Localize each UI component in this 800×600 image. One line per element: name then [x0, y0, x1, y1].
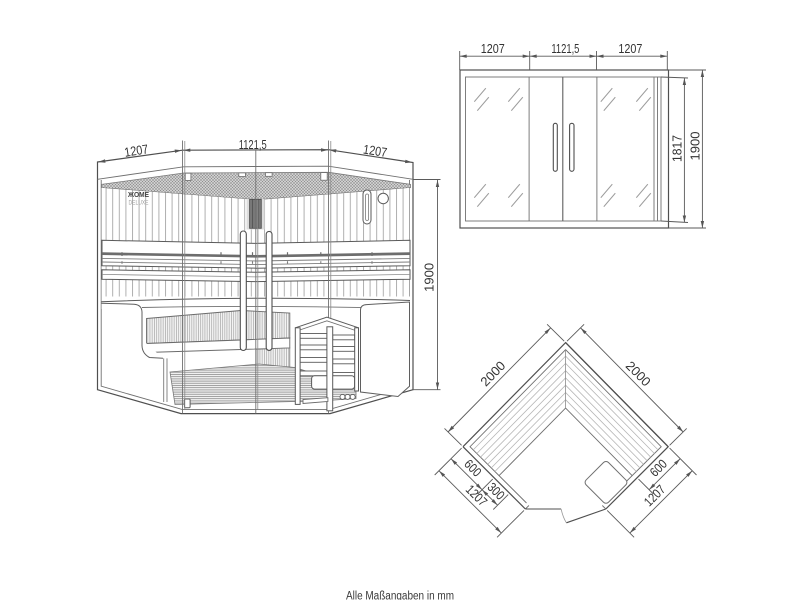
svg-text:DELUXE: DELUXE: [129, 199, 149, 206]
svg-text:ЖOME: ЖOME: [127, 190, 149, 199]
svg-text:1121,5: 1121,5: [551, 41, 579, 56]
svg-text:1900: 1900: [687, 132, 702, 161]
svg-text:1817: 1817: [669, 135, 684, 162]
svg-text:1207: 1207: [481, 41, 505, 56]
svg-text:Alle Maßangaben in mm: Alle Maßangaben in mm: [346, 591, 454, 600]
svg-text:1900: 1900: [422, 263, 437, 292]
svg-text:1207: 1207: [618, 41, 642, 56]
svg-text:1121,5: 1121,5: [239, 137, 267, 152]
